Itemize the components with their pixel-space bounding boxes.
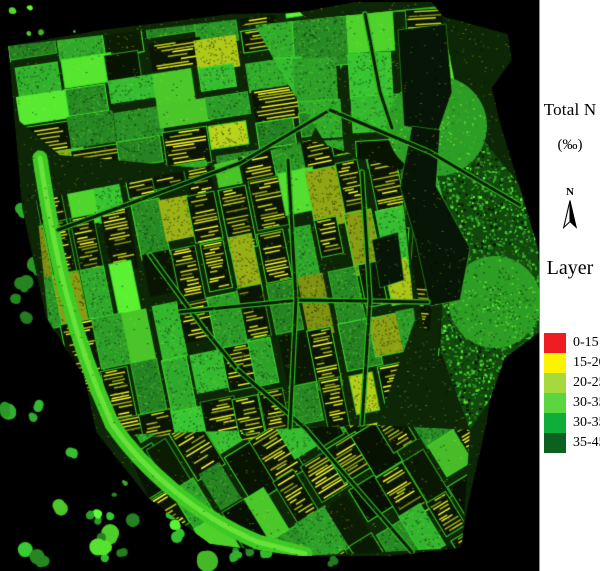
map-title: Total N xyxy=(540,100,600,120)
map-units: (‰) xyxy=(540,137,600,154)
legend-item: 30-35 xyxy=(544,393,600,413)
total-n-map-figure: Total N (‰) N Layer 0-1515-2020-2530-353… xyxy=(0,0,600,571)
legend-swatch xyxy=(544,353,566,373)
total-n-raster-map xyxy=(0,0,540,571)
legend-item: 30-35 xyxy=(544,413,600,433)
legend-label: 30-35 xyxy=(573,393,600,413)
legend-item: 15-20 xyxy=(544,353,600,373)
north-arrow-icon xyxy=(561,199,579,229)
legend-label: 15-20 xyxy=(573,353,600,373)
north-arrow: N xyxy=(540,186,600,229)
legend-item: 0-15 xyxy=(544,333,600,353)
legend-item: 35-45 xyxy=(544,433,600,453)
legend-swatch xyxy=(544,333,566,353)
legend: 0-1515-2020-2530-3530-3535-45 xyxy=(544,333,600,453)
north-label: N xyxy=(540,186,600,198)
legend-item: 20-25 xyxy=(544,373,600,393)
legend-swatch xyxy=(544,373,566,393)
legend-label: 20-25 xyxy=(573,373,600,393)
layer-label: Layer xyxy=(540,257,600,280)
legend-label: 0-15 xyxy=(573,333,599,353)
legend-label: 35-45 xyxy=(573,433,600,453)
legend-swatch xyxy=(544,433,566,453)
legend-panel: Total N (‰) N Layer 0-1515-2020-2530-353… xyxy=(539,0,600,571)
legend-swatch xyxy=(544,413,566,433)
legend-swatch xyxy=(544,393,566,413)
legend-label: 30-35 xyxy=(573,413,600,433)
